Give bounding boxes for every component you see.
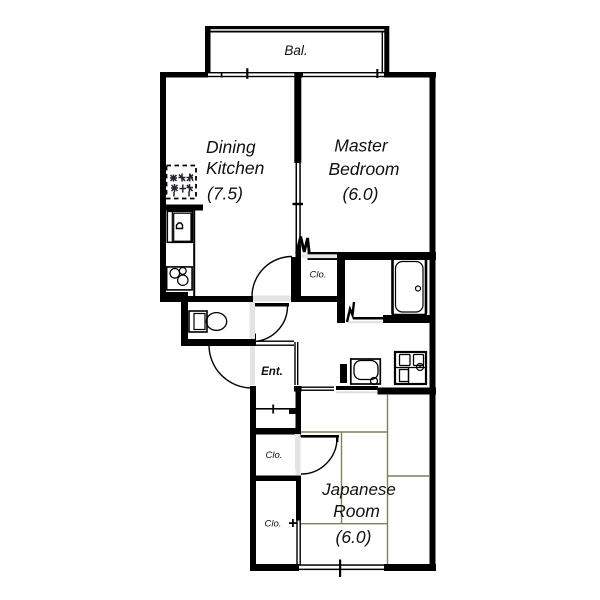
svg-text:Dining: Dining	[206, 137, 256, 157]
svg-text:Bal.: Bal.	[284, 43, 307, 58]
svg-text:(7.5): (7.5)	[207, 184, 243, 204]
svg-text:(6.0): (6.0)	[343, 184, 379, 204]
svg-text:Master: Master	[334, 136, 389, 156]
svg-text:Clo.: Clo.	[310, 270, 327, 281]
svg-text:Ent.: Ent.	[261, 366, 283, 378]
svg-text:Japanese: Japanese	[321, 480, 396, 499]
svg-text:Room: Room	[333, 501, 380, 521]
svg-text:Clo.: Clo.	[266, 450, 283, 461]
svg-text:Bedroom: Bedroom	[328, 159, 399, 179]
svg-text:(6.0): (6.0)	[336, 527, 372, 547]
svg-text:Kitchen: Kitchen	[206, 158, 264, 178]
svg-text:Clo.: Clo.	[265, 519, 282, 530]
